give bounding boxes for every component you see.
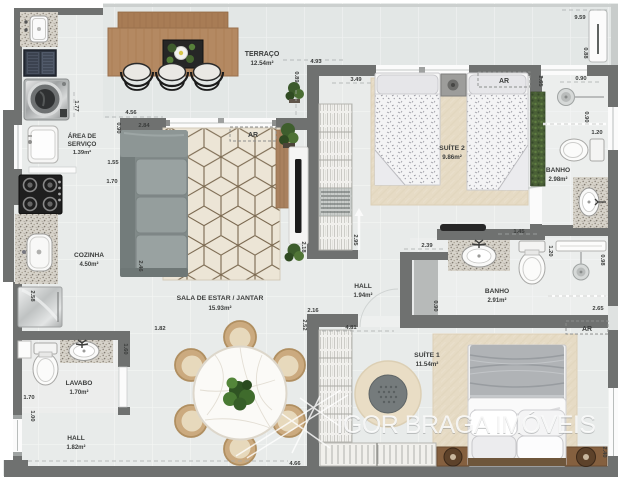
- svg-text:SUÍTE 1: SUÍTE 1: [414, 350, 440, 359]
- svg-text:1.77: 1.77: [73, 100, 79, 111]
- svg-text:TERRAÇO: TERRAÇO: [245, 51, 280, 58]
- svg-text:4.81: 4.81: [345, 325, 357, 331]
- svg-text:AR: AR: [248, 132, 258, 139]
- svg-text:1.20: 1.20: [547, 245, 553, 256]
- svg-text:BANHO: BANHO: [546, 167, 570, 174]
- svg-text:2.84: 2.84: [138, 123, 150, 129]
- svg-text:COZINHA: COZINHA: [74, 252, 104, 259]
- svg-text:4.66: 4.66: [289, 461, 301, 467]
- svg-text:2.52: 2.52: [301, 319, 307, 330]
- svg-text:LAVABO: LAVABO: [66, 380, 93, 387]
- svg-text:1.70m²: 1.70m²: [69, 389, 88, 396]
- svg-text:9.59: 9.59: [574, 15, 586, 21]
- svg-text:HALL: HALL: [354, 283, 372, 290]
- svg-text:2.18: 2.18: [300, 241, 306, 253]
- svg-text:0.90: 0.90: [583, 111, 589, 122]
- svg-text:1.60: 1.60: [122, 343, 128, 354]
- svg-text:1.45: 1.45: [513, 229, 525, 235]
- svg-text:9.86m²: 9.86m²: [442, 154, 462, 161]
- svg-text:15.93m²: 15.93m²: [208, 305, 231, 312]
- svg-text:ÁREA DE: ÁREA DE: [68, 131, 97, 140]
- svg-text:0.90: 0.90: [432, 300, 438, 311]
- svg-text:1.70: 1.70: [23, 395, 34, 401]
- svg-text:3.49: 3.49: [350, 77, 362, 83]
- svg-text:2.16: 2.16: [307, 308, 319, 314]
- svg-text:4.56: 4.56: [125, 110, 137, 116]
- svg-text:2.65: 2.65: [537, 75, 543, 87]
- svg-text:0.90: 0.90: [115, 122, 121, 133]
- svg-text:0.90: 0.90: [575, 76, 586, 82]
- svg-text:1.20: 1.20: [591, 130, 602, 136]
- svg-text:1.55: 1.55: [107, 160, 119, 166]
- svg-text:AR: AR: [499, 78, 509, 85]
- svg-text:1.39m²: 1.39m²: [73, 149, 91, 156]
- svg-text:2.98m²: 2.98m²: [548, 176, 567, 183]
- svg-text:SERVIÇO: SERVIÇO: [68, 141, 97, 148]
- svg-text:2.95: 2.95: [352, 234, 358, 246]
- svg-text:BANHO: BANHO: [485, 288, 509, 295]
- svg-text:SALA DE ESTAR / JANTAR: SALA DE ESTAR / JANTAR: [177, 295, 264, 302]
- svg-text:IGOR BRAGA IMÓVEIS: IGOR BRAGA IMÓVEIS: [336, 410, 595, 439]
- svg-text:2.58: 2.58: [29, 290, 35, 302]
- svg-text:1.82: 1.82: [154, 326, 165, 332]
- svg-text:4.50m²: 4.50m²: [79, 261, 98, 268]
- svg-text:HALL: HALL: [67, 435, 85, 442]
- svg-text:1.70: 1.70: [106, 179, 117, 185]
- svg-text:2.40: 2.40: [601, 446, 607, 457]
- svg-text:2.65: 2.65: [592, 306, 604, 312]
- svg-text:0.98: 0.98: [599, 254, 605, 266]
- svg-text:0.89: 0.89: [293, 71, 299, 83]
- svg-text:1.82m²: 1.82m²: [66, 444, 85, 451]
- svg-text:2.39: 2.39: [421, 243, 433, 249]
- svg-text:12.54m²: 12.54m²: [250, 60, 273, 67]
- svg-text:2.46: 2.46: [137, 260, 143, 272]
- svg-text:4.93: 4.93: [310, 59, 322, 65]
- svg-text:AR: AR: [582, 326, 592, 333]
- svg-text:SUÍTE 2: SUÍTE 2: [439, 143, 465, 152]
- svg-text:11.54m²: 11.54m²: [416, 361, 439, 368]
- svg-text:1.94m²: 1.94m²: [353, 292, 372, 299]
- svg-text:0.88: 0.88: [582, 47, 588, 59]
- svg-text:1.00: 1.00: [29, 410, 35, 421]
- svg-text:2.91m²: 2.91m²: [487, 297, 506, 304]
